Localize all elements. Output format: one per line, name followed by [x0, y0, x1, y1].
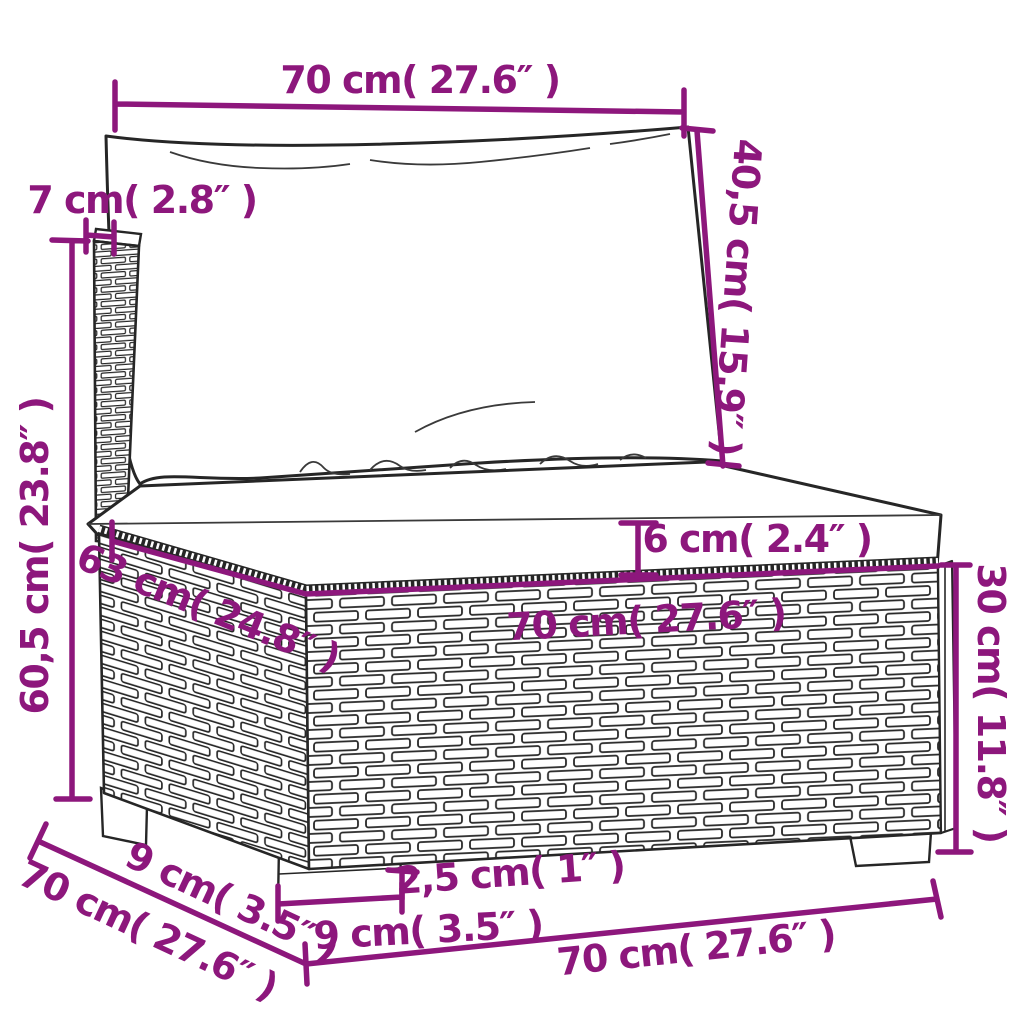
dim-label-leg-front-width: 9 cm( 3.5″ ): [313, 905, 544, 955]
sofa-middle-section: [88, 127, 956, 904]
dim-label-overall-height: 60,5 cm( 23.8″ ): [16, 397, 54, 714]
dim-label-top-width: 70 cm( 27.6″ ): [280, 61, 559, 99]
dim-line-overall-height: [52, 240, 90, 799]
dim-label-cushion-thickness: 6 cm( 2.4″ ): [642, 520, 871, 558]
dim-label-backrest-thickness: 7 cm( 2.8″ ): [27, 181, 256, 219]
product-dimension-diagram: 70 cm( 27.6″ ) 7 cm( 2.8″ ) 40,5 cm( 15.…: [0, 0, 1024, 1024]
dim-label-base-height: 30 cm( 11.8″ ): [972, 563, 1010, 842]
